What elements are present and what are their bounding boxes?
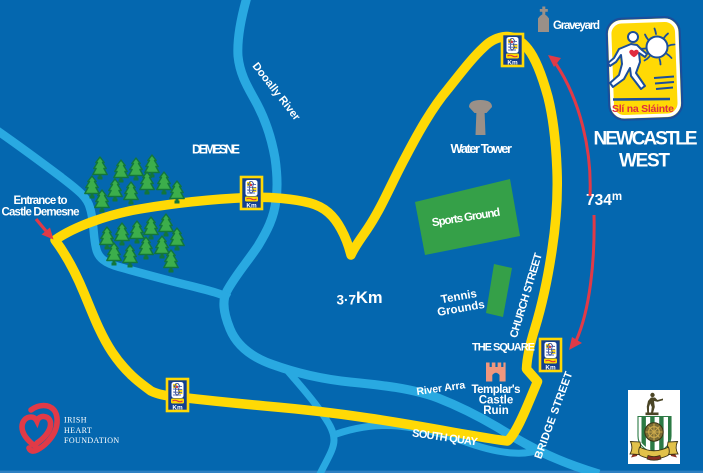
svg-text:NEWCASTLE: NEWCASTLE [594, 129, 698, 150]
svg-text:Water Tower: Water Tower [451, 141, 513, 156]
svg-text:Graveyard: Graveyard [553, 20, 600, 32]
svg-text:Ruin: Ruin [483, 405, 509, 417]
svg-text:WEST: WEST [619, 151, 670, 172]
svg-text:Castle Demesne: Castle Demesne [2, 207, 80, 219]
svg-text:THE SQUARE: THE SQUARE [472, 342, 535, 354]
svg-text:3·7Km: 3·7Km [337, 289, 383, 308]
svg-text:IRISH: IRISH [64, 416, 87, 425]
svg-text:Slí na Sláinte: Slí na Sláinte [612, 103, 674, 115]
svg-text:DEMESNE: DEMESNE [192, 143, 240, 157]
svg-text:Entrance to: Entrance to [14, 195, 68, 207]
svg-text:HEART: HEART [64, 426, 92, 435]
svg-text:FOUNDATION: FOUNDATION [64, 436, 120, 445]
